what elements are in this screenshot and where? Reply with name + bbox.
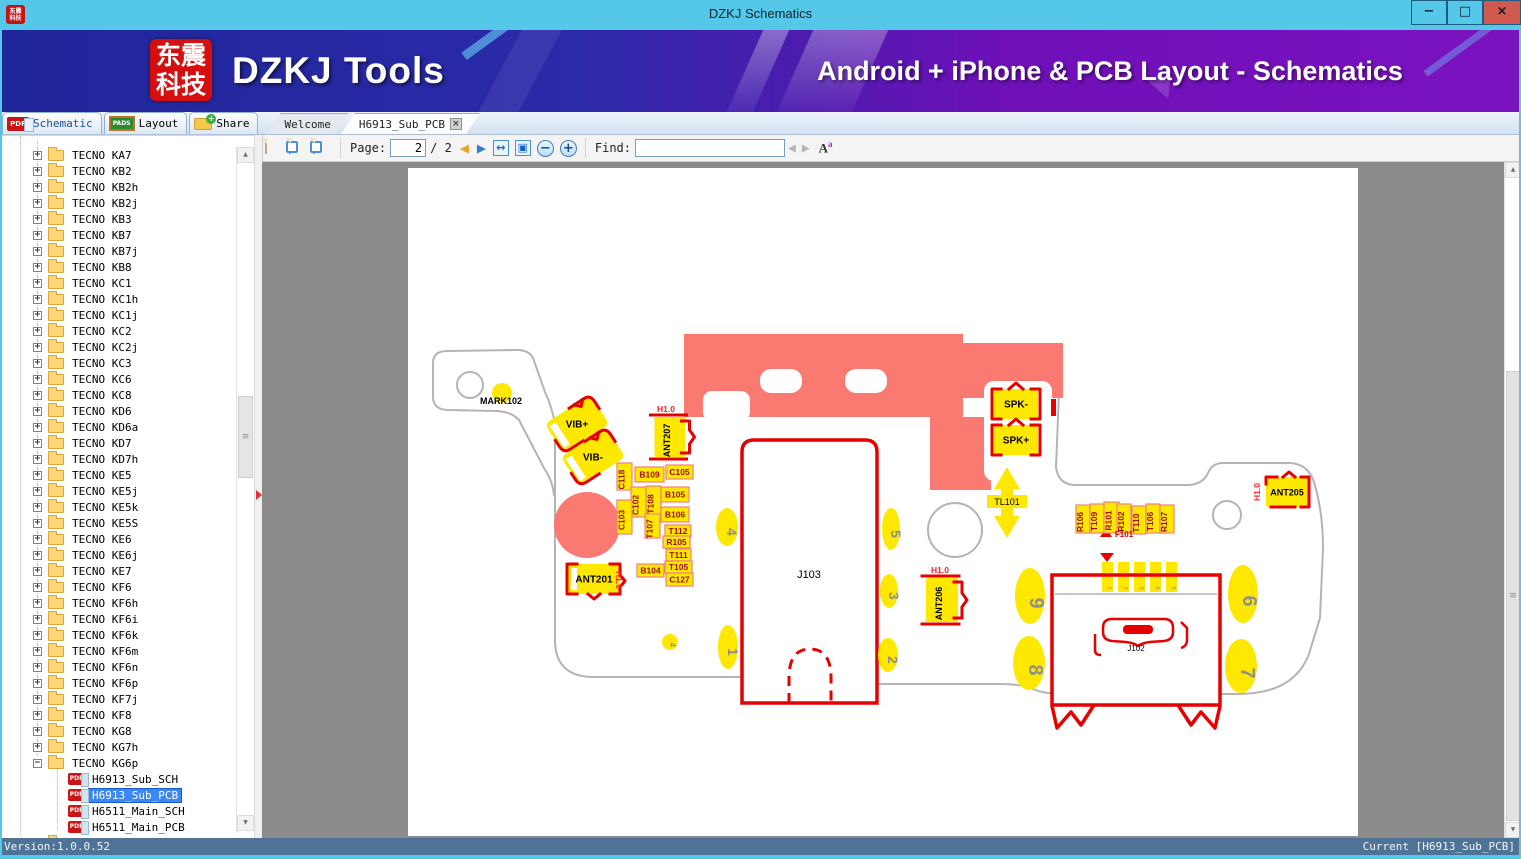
ref-label-T108: T108 [646,486,662,516]
folder-icon [48,486,64,497]
page-number-input[interactable] [390,139,426,157]
ref-label-T110: T110 [1131,506,1146,534]
banner-streak [461,30,543,60]
tab-share[interactable]: Share [189,112,258,134]
tree-item-h6913_sub_sch[interactable]: PDFH6913_Sub_SCH [0,771,236,787]
folder-icon [48,598,64,609]
pcb-text: 1 [725,648,741,656]
folder-icon [48,198,64,209]
tree-item-label[interactable]: TECNO KG6p [69,757,141,770]
expand-icon[interactable]: + [33,663,42,672]
folder-icon [48,726,64,737]
pcb-text: 6 [1238,595,1260,606]
font-size-icon[interactable]: Aa [819,139,833,156]
tree-item-tecno-kf6m[interactable]: +TECNO KF6m [0,643,236,659]
tree-item-tecno-kb2j[interactable]: +TECNO KB2j [0,195,236,211]
tree-item-label[interactable]: TECNO KG8 [69,725,135,738]
tree-item-tecno-kc2j[interactable]: +TECNO KC2j [0,339,236,355]
tree-item-label[interactable]: TECNO KE5 [69,469,135,482]
tree-item-label[interactable]: TECNO KB3 [69,213,135,226]
tree-item-label[interactable]: H6913_Sub_SCH [89,773,181,786]
pcb-text-J102: J102 [1127,644,1145,653]
app-window: 东震 科技 DZKJ Schematics − □ × 东震 科技 DZKJ T… [0,0,1521,859]
pcb-text: 3 [886,592,902,600]
pad-label-ANT201: ANT201 [575,575,613,586]
tree-item-label[interactable]: TECNO KD6a [69,421,141,434]
pcb-text: R105 [666,537,687,547]
schematic-tree-panel: +TECNO KA7+TECNO KB2+TECNO KB2h+TECNO KB… [0,135,254,838]
tree-item-label[interactable]: TECNO KD7 [69,437,135,450]
window-border [0,30,2,855]
tree-item-tecno-kf6[interactable]: +TECNO KF6 [0,579,236,595]
folder-icon [48,214,64,225]
tree-item-label[interactable]: TECNO KF6n [69,661,141,674]
tree-scrollbar[interactable]: ▲ ≡ ▼ [236,147,254,833]
tree-item-label[interactable]: TECNO KB2 [69,165,135,178]
expand-icon[interactable]: + [33,615,42,624]
tree-item-label[interactable]: TECNO KE6 [69,533,135,546]
find-next-icon[interactable]: ▶ [802,141,810,156]
tree-item-label[interactable]: TECNO KC1 [69,277,135,290]
tree-item-tecno-kc8[interactable]: +TECNO KC8 [0,387,236,403]
pad-label-ANT205: ANT205 [1270,488,1304,498]
folder-icon [48,646,64,657]
tree-item-tecno-kc2[interactable]: +TECNO KC2 [0,323,236,339]
panel-splitter[interactable] [254,135,262,838]
folder-icon [48,710,64,721]
folder-icon [48,582,64,593]
tree-item-label[interactable]: TECNO KE6j [69,549,141,562]
tree-item-label[interactable]: TECNO KF6h [69,597,141,610]
tree-item-tecno-ke6[interactable]: +TECNO KE6 [0,531,236,547]
ref-label-C105: C105 [666,465,693,479]
tree-item-h6511_main_pcb[interactable]: PDFH6511_Main_PCB [0,819,236,835]
tree-item-tecno-kc3[interactable]: +TECNO KC3 [0,355,236,371]
tree-item-tecno-kb2[interactable]: +TECNO KB2 [0,163,236,179]
expand-icon[interactable]: + [33,679,42,688]
title-bar: 东震 科技 DZKJ Schematics − □ × [0,0,1521,30]
tree-item-label[interactable]: TECNO KD6 [69,405,135,418]
expand-icon[interactable]: + [33,231,42,240]
pcb-text: 9 [1025,597,1047,608]
close-button[interactable]: × [1483,0,1521,25]
expand-icon[interactable]: + [33,215,42,224]
current-document-text: Current [H6913_Sub_PCB] [1363,838,1515,855]
expand-icon[interactable]: + [33,295,42,304]
expand-icon[interactable]: + [33,391,42,400]
h10-label: H1.0 [1252,483,1262,501]
expand-icon[interactable]: + [33,343,42,352]
pcb-text: J102 [1127,644,1145,653]
tree-item-label[interactable]: TECNO KD7h [69,453,141,466]
pcb-text: MARK102 [480,396,522,406]
page-copy-left-icon[interactable] [289,139,309,157]
pcb-text: T109 [1089,512,1099,532]
folder-icon [48,390,64,401]
tree-item-tecno-kf7j[interactable]: +TECNO KF7j [0,691,236,707]
folder-icon [48,406,64,417]
folder-icon [48,694,64,705]
expand-icon[interactable]: + [33,407,42,416]
tree-item-tecno-kc1j[interactable]: +TECNO KC1j [0,307,236,323]
tab-layout[interactable]: PADS Layout [104,112,188,134]
expand-icon[interactable]: + [33,599,42,608]
expand-icon[interactable]: + [33,535,42,544]
pcb-text: J103 [797,569,821,581]
ref-label-C102: C102 [631,487,647,517]
folder-icon [48,614,64,625]
expand-icon[interactable]: + [33,455,42,464]
ref-label-B105: B105 [661,487,689,502]
pcb-text: TL101 [994,497,1020,507]
pad-ANT205: ANT205 [1266,472,1309,507]
folder-icon [48,470,64,481]
expand-icon[interactable]: + [33,695,42,704]
separator [585,138,586,158]
scroll-up-icon[interactable]: ▲ [237,147,254,163]
tree-item-tecno-kb7j[interactable]: +TECNO KB7j [0,243,236,259]
brand-logo: 东震 科技 [150,39,212,101]
pad-label-ANT206: ANT206 [934,587,944,621]
page-total: / 2 [430,141,452,155]
pcb-text: 2 [885,656,901,664]
folder-icon [48,678,64,689]
folder-icon [48,550,64,561]
banner-tagline: Android + iPhone & PCB Layout - Schemati… [770,56,1450,87]
tree-item-label[interactable]: TECNO KF6 [69,581,135,594]
expand-icon[interactable]: + [33,487,42,496]
pcb-text: R101 [1104,510,1114,531]
folder-icon [48,742,64,753]
pdf-icon: PDF [7,117,29,131]
folder-icon [48,518,64,529]
separator [340,138,341,158]
tree-item-label[interactable]: TECNO KB2j [69,197,141,210]
pcb-text: T112 [669,526,688,536]
tree-item-label[interactable]: TECNO KC2 [69,325,135,338]
status-bar: Version:1.0.0.52 Current [H6913_Sub_PCB] [0,838,1521,855]
ref-label-T106: T106 [1145,504,1160,533]
ref-label-T105: T105 [665,561,692,573]
tree-item-tecno-kb2h[interactable]: +TECNO KB2h [0,179,236,195]
folder-icon [48,150,64,161]
expand-icon[interactable]: + [33,583,42,592]
prev-page-icon[interactable]: ◀ [460,139,469,157]
tree-item-label[interactable]: TECNO KC6 [69,373,135,386]
tree-item-h6511_main_sch[interactable]: PDFH6511_Main_SCH [0,803,236,819]
banner-streak [478,30,562,112]
tree-item-label[interactable]: TECNO KC1j [69,309,141,322]
pdf-page [408,168,1358,836]
folder-icon [48,342,64,353]
folder-icon [48,310,64,321]
banner: 东震 科技 DZKJ Tools Android + iPhone & PCB … [0,30,1521,112]
pcb-text: R106 [1075,512,1085,533]
expand-icon[interactable]: + [33,247,42,256]
folder-icon [48,662,64,673]
tree-item-tecno-kf8[interactable]: +TECNO KF8 [0,707,236,723]
expand-icon[interactable]: + [33,439,42,448]
ref-label-T112: T112 [665,525,691,537]
tree-item-tecno-kg7h[interactable]: +TECNO KG7h [0,739,236,755]
tree-item-tecno-kb7[interactable]: +TECNO KB7 [0,227,236,243]
next-page-icon[interactable]: ▶ [477,139,486,157]
expand-icon[interactable]: + [33,375,42,384]
h10-label: H1.0 [931,565,949,575]
ref-label-C118: C118 [617,463,633,490]
ref-label-R105: R105 [663,536,690,548]
window-title: DZKJ Schematics [0,6,1521,21]
expand-icon[interactable]: + [33,503,42,512]
pcb-canvas[interactable]: 12345 C118B109C105C102T108C103T107B105B1… [262,162,1504,838]
pcb-text: C127 [669,575,690,585]
expand-icon[interactable]: + [33,727,42,736]
expand-icon[interactable]: + [33,183,42,192]
pcb-text-TL101: TL101 [987,495,1027,508]
folder-icon [48,454,64,465]
tree-item-label[interactable]: TECNO KF6k [69,629,141,642]
share-folder-icon [194,118,212,130]
tree-item-tecno-kb3[interactable]: +TECNO KB3 [0,211,236,227]
collapse-icon[interactable]: − [33,759,42,768]
ref-label-T107: T107 [645,514,661,539]
folder-icon [48,294,64,305]
pad-label-SPK+: SPK+ [1003,436,1030,447]
tree-item-label[interactable]: TECNO KC2j [69,341,141,354]
tree-item-tecno-kc1h[interactable]: +TECNO KC1h [0,291,236,307]
tree-item-label[interactable]: TECNO KE5S [69,517,141,530]
tree-item-label[interactable]: TECNO KC8 [69,389,135,402]
tree-item-label[interactable]: TECNO KF6i [69,613,141,626]
doc-tab-welcome[interactable]: Welcome [266,113,348,134]
pcb-text-MARK102: MARK102 [480,396,522,406]
folder-icon [48,182,64,193]
tree-item-label[interactable]: TECNO KG7h [69,741,141,754]
tree-item-label[interactable]: TECNO KB8 [69,261,135,274]
tree-item-label[interactable]: H6511_Main_PCB [89,821,188,834]
doc-tab-h6913-sub-pcb[interactable]: H6913_Sub_PCB × [341,113,480,134]
tree-item-tecno-ke7[interactable]: +TECNO KE7 [0,563,236,579]
pcb-text: R107 [1159,512,1169,533]
plane-slot [845,369,887,393]
tree-item-tecno-ke5[interactable]: +TECNO KE5 [0,467,236,483]
pcb-text: 4 [668,643,677,648]
expand-icon[interactable]: + [33,711,42,720]
tree-item-h6913_sub_pcb[interactable]: PDFH6913_Sub_PCB [0,787,236,803]
find-label: Find: [595,141,631,155]
pcb-text: T106 [1145,512,1155,532]
close-tab-icon[interactable]: × [450,118,462,130]
expand-icon[interactable]: + [33,359,42,368]
h10-label: H1.0 [614,571,624,589]
pcb-text: B104 [640,566,661,576]
pdf-icon: PDF [68,773,85,785]
expand-icon[interactable]: + [33,519,42,528]
tree-item-label[interactable]: TECNO KC1h [69,293,141,306]
tree-item-tecno-kf6n[interactable]: +TECNO KF6n [0,659,236,675]
brand-name: DZKJ Tools [232,50,445,92]
tree-item-label-selected[interactable]: H6913_Sub_PCB [89,789,181,802]
folder-icon [48,502,64,513]
pin-oval-4: 4 [662,634,678,650]
tree-item-label[interactable]: TECNO KF6p [69,677,141,690]
tab-bar: PDF Schematic PADS Layout Share Welcome … [0,112,1521,135]
folder-icon [48,534,64,545]
folder-icon [48,422,64,433]
pad-label-VIB-: VIB- [583,453,603,464]
pcb-text: C105 [669,467,690,477]
expand-icon[interactable]: + [33,279,42,288]
tree-item-label[interactable]: H6511_Main_SCH [89,805,188,818]
folder-icon [48,438,64,449]
tree-item-label[interactable]: TECNO KC3 [69,357,135,370]
tree-item-tecno-kg8[interactable]: +TECNO KG8 [0,723,236,739]
pcb-text: R102 [1116,511,1126,532]
tree-item-label[interactable]: TECNO KF6m [69,645,141,658]
expand-icon[interactable]: + [33,743,42,752]
tree-item-tecno-kg6p[interactable]: −TECNO KG6p [0,755,236,771]
folder-icon [48,630,64,641]
canvas-scrollbar-thumb[interactable]: ≡ [1506,371,1520,821]
folder-icon [48,326,64,337]
folder-icon [48,166,64,177]
ref-label-B109: B109 [635,467,664,482]
pcb-text: 4 [724,528,740,536]
page-label: Page: [350,141,386,155]
pcb-text: T108 [646,494,656,514]
expand-icon[interactable]: + [33,167,42,176]
expand-icon[interactable]: + [33,327,42,336]
tree-item-tecno-kb8[interactable]: +TECNO KB8 [0,259,236,275]
pcb-text: 8 [1024,664,1046,675]
expand-icon[interactable]: + [33,647,42,656]
zoom-in-icon[interactable]: + [560,140,577,157]
page-copy-right-icon[interactable] [313,139,333,157]
window-border [0,855,1521,859]
tab-schematic[interactable]: PDF Schematic [2,112,102,134]
folder-icon [48,278,64,289]
tree-item-label[interactable]: TECNO KE7 [69,565,135,578]
tree-item-label[interactable]: TECNO KB7j [69,245,141,258]
pcb-text: B105 [665,490,686,500]
folder-icon [48,358,64,369]
expand-icon[interactable]: + [33,423,42,432]
tree-item-tecno-kf6i[interactable]: +TECNO KF6i [0,611,236,627]
tree-item-label[interactable]: TECNO KA7 [69,149,135,162]
tree-item-tecno-ka7[interactable]: +TECNO KA7 [0,147,236,163]
ref-label-B106: B106 [661,507,689,522]
tree-item-tecno-ke6j[interactable]: +TECNO KE6j [0,547,236,563]
folder-icon [48,246,64,257]
tree-item-tecno-kd7[interactable]: +TECNO KD7 [0,435,236,451]
tree-item-label[interactable]: TECNO KB2h [69,181,141,194]
copper-disc [554,492,620,558]
ref-label-T111: T111 [666,549,691,561]
pcb-text: C103 [617,510,627,531]
maximize-button[interactable]: □ [1447,0,1483,25]
ref-label-T109: T109 [1089,504,1104,533]
toolbar: Page: / 2 ◀ ▶ ↔ ▣ − + Find: ◀ ▶ Aa [262,135,1521,162]
folder-icon [48,758,64,769]
folder-icon [48,566,64,577]
tree-item-tecno-kc6[interactable]: +TECNO KC6 [0,371,236,387]
pcb-text: 5 [888,530,904,538]
ref-label-R107: R107 [1159,505,1174,533]
expand-icon[interactable]: + [33,199,42,208]
expand-icon[interactable]: + [33,567,42,576]
pcb-text: 7 [1236,667,1258,678]
pcb-text: T111 [669,550,688,560]
tree-item-tecno-kd6[interactable]: +TECNO KD6 [0,403,236,419]
pdf-icon: PDF [68,821,85,833]
minimize-button[interactable]: − [1411,0,1447,25]
ref-label-C127: C127 [666,573,693,586]
plane-slot [760,369,802,393]
pads-icon: PADS [109,116,135,131]
scroll-down-icon[interactable]: ▼ [237,815,254,831]
zoom-out-icon[interactable]: − [537,140,554,157]
pad-label-VIB+: VIB+ [566,420,589,431]
page-view-icon[interactable] [265,139,285,157]
tree-item-label[interactable]: TECNO KE5k [69,501,141,514]
pcb-text-J103: J103 [797,569,821,581]
folder-icon [48,230,64,241]
tree-item-tecno-kf6k[interactable]: +TECNO KF6k [0,627,236,643]
expand-icon[interactable]: + [33,311,42,320]
pcb-text: F101 [1115,530,1134,539]
plane-mark [1051,399,1056,416]
pcb-text-F101: F101 [1115,530,1134,539]
pdf-icon: PDF [68,805,85,817]
tree-item-label[interactable]: TECNO KF8 [69,709,135,722]
tree-item-tecno-ke5s[interactable]: +TECNO KE5S [0,515,236,531]
folder-icon [48,374,64,385]
pdf-icon: PDF [68,789,85,801]
tree-item-tecno-kd6a[interactable]: +TECNO KD6a [0,419,236,435]
tree-item-tecno-kf6h[interactable]: +TECNO KF6h [0,595,236,611]
fit-page-icon[interactable]: ▣ [515,140,531,156]
expand-icon[interactable]: + [33,151,42,160]
expand-icon[interactable]: + [33,263,42,272]
tree-item-tecno-kf6p[interactable]: +TECNO KF6p [0,675,236,691]
tree-item-tecno-kd7h[interactable]: +TECNO KD7h [0,451,236,467]
ref-label-R102: R102 [1116,504,1131,533]
pcb-text: T105 [669,562,689,572]
pad-label-ANT207: ANT207 [662,424,672,458]
tree-item-tecno-ke5j[interactable]: +TECNO KE5j [0,483,236,499]
find-input[interactable] [635,139,785,157]
tree-item-tecno-kc1[interactable]: +TECNO KC1 [0,275,236,291]
pcb-text: T107 [645,519,655,539]
expand-icon[interactable]: + [33,631,42,640]
pcb-text: C118 [617,469,627,489]
tree-item-label[interactable]: TECNO KB7 [69,229,135,242]
expand-icon[interactable]: + [33,551,42,560]
h10-label: H1.0 [657,404,675,414]
pcb-text: B106 [665,510,686,520]
tree-item-label[interactable]: TECNO KF7j [69,693,141,706]
folder-icon [48,262,64,273]
pcb-text: B109 [639,470,660,480]
tree-item-label[interactable]: TECNO KE5j [69,485,141,498]
tree-item-tecno-ke5k[interactable]: +TECNO KE5k [0,499,236,515]
expand-icon[interactable]: + [33,471,42,480]
fit-width-icon[interactable]: ↔ [493,140,509,156]
tree-scrollbar-thumb[interactable]: ≡ [238,396,253,478]
pad-label-SPK-: SPK- [1004,400,1028,411]
ref-label-C103: C103 [617,500,633,534]
find-prev-icon[interactable]: ◀ [788,141,796,156]
